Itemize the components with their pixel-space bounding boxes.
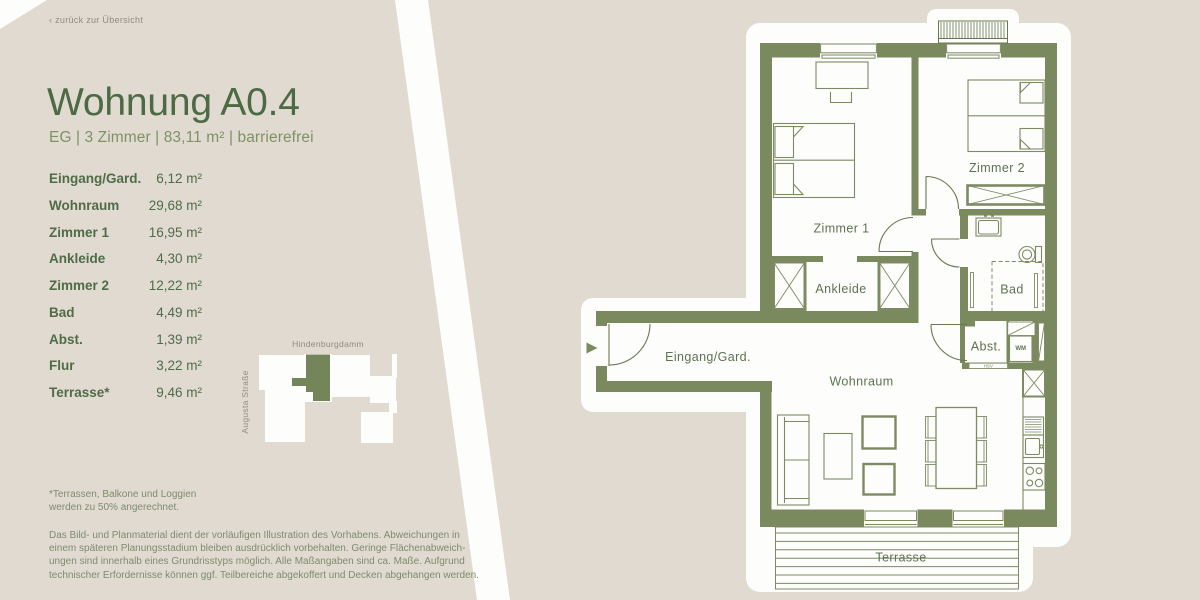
svg-text:Hindenburgdamm: Hindenburgdamm <box>292 339 364 349</box>
svg-text:Zimmer 2: Zimmer 2 <box>969 161 1025 175</box>
svg-text:Augusta Straße: Augusta Straße <box>240 370 250 433</box>
svg-text:Abst.: Abst. <box>971 340 1002 354</box>
svg-text:WM: WM <box>1015 346 1026 352</box>
svg-text:Wohnraum: Wohnraum <box>829 375 893 389</box>
svg-text:Bad: Bad <box>1000 283 1023 297</box>
svg-text:Eingang/Gard.: Eingang/Gard. <box>665 350 751 364</box>
svg-text:Ankleide: Ankleide <box>815 282 866 296</box>
svg-text:Zimmer 1: Zimmer 1 <box>814 222 870 236</box>
svg-text:Terrasse: Terrasse <box>875 551 926 565</box>
svg-text:HSV: HSV <box>984 364 993 369</box>
